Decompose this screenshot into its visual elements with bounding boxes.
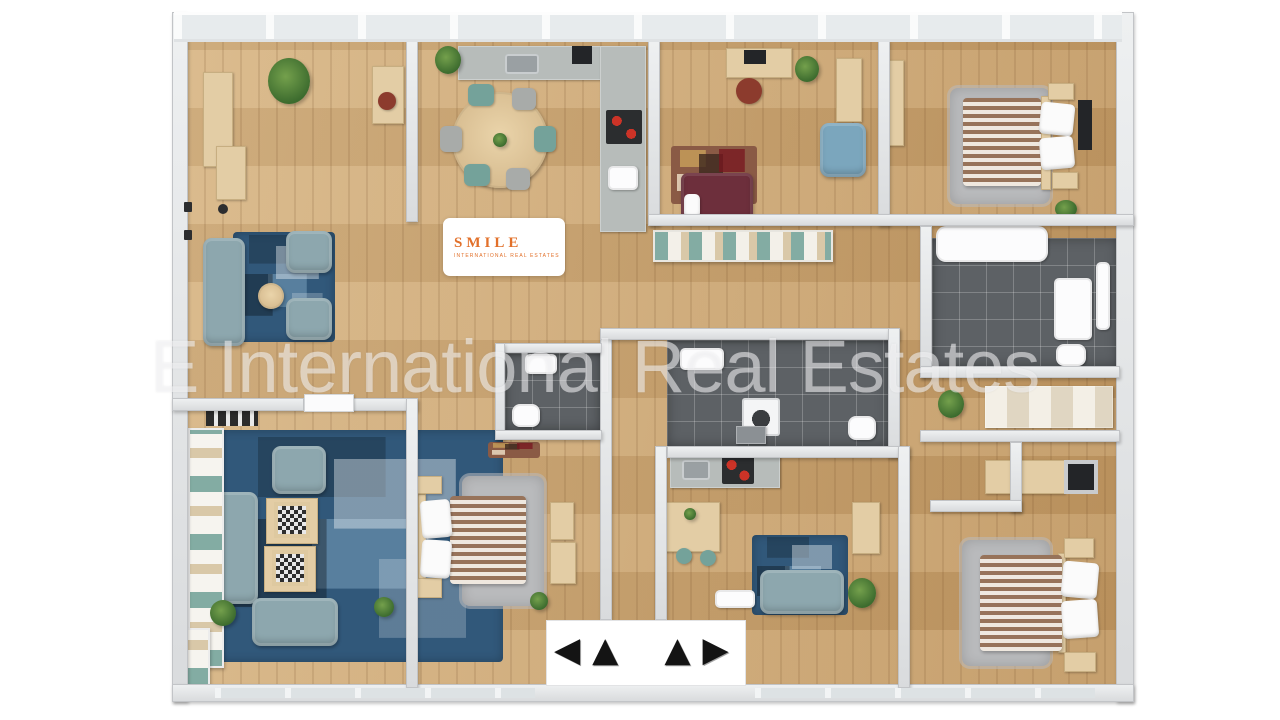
kitchen-sink [505, 54, 539, 74]
pillow [1061, 599, 1100, 639]
dining-chair [512, 88, 536, 110]
nightstand [416, 578, 442, 598]
console-table [216, 146, 246, 200]
wall-art [488, 442, 540, 458]
loveseat [760, 570, 844, 614]
entrance-arrows: ◀ ▲ ▲ ▶ [552, 624, 740, 676]
brand-logo-card: SMILE INTERNATIONAL REAL ESTATES [443, 218, 565, 276]
sideboard [852, 502, 880, 554]
chessboard [278, 506, 306, 534]
cabinet [550, 542, 576, 584]
kitchen-sink-2 [608, 166, 638, 190]
nightstand [1048, 83, 1074, 100]
wall-panel [184, 202, 192, 212]
wall-nook-h [930, 500, 1022, 512]
wall-hall-top [648, 214, 1134, 226]
logo-brand-name: SMILE [454, 236, 560, 251]
chessboard [276, 554, 304, 582]
floor-lamp [218, 204, 228, 214]
nightstand [416, 476, 442, 494]
wall-kitchen2-top [667, 446, 910, 458]
table-plant [684, 508, 696, 520]
armchair [272, 446, 326, 494]
cabinet [715, 590, 755, 608]
wall-study-bedroom [878, 40, 890, 226]
bed-striped-duvet [980, 555, 1062, 651]
nightstand [1052, 172, 1078, 189]
coffee-machine [572, 46, 592, 64]
side-table [258, 283, 284, 309]
kitchen-sink [682, 460, 710, 480]
desk-chair [378, 92, 396, 110]
tall-cabinet [1096, 262, 1110, 330]
bottom-window-right [755, 688, 1095, 698]
cabinet [836, 58, 862, 122]
nightstand [1064, 652, 1096, 672]
wall-kitchen-study [648, 40, 660, 226]
pillow [1060, 560, 1099, 599]
plant [210, 600, 236, 626]
wall-niche [1068, 464, 1094, 490]
stool [676, 548, 692, 564]
wall-bedroom4-top [920, 430, 1120, 442]
stove [722, 456, 754, 484]
pillow [420, 539, 453, 579]
wall-corridor-right [655, 446, 667, 620]
pillow [1038, 101, 1075, 136]
wall-art [1078, 100, 1092, 150]
closet-bench [985, 460, 1065, 494]
watermark-text: E International Real Estates [150, 324, 1280, 409]
floor-plan-render: ◀ ▲ ▲ ▶ E International Real Estates SMI… [0, 0, 1280, 720]
toilet [848, 416, 876, 440]
dresser [550, 502, 574, 540]
arrow-right-icon: ▶ [702, 633, 728, 667]
logo-text-block: SMILE INTERNATIONAL REAL ESTATES [454, 236, 560, 259]
sofa-two-seat [252, 598, 338, 646]
plant [530, 592, 548, 610]
office-chair [736, 78, 762, 104]
plant [848, 578, 876, 608]
plant [795, 56, 819, 82]
stool [700, 550, 716, 566]
plant [268, 58, 310, 104]
hall-shelving [653, 230, 833, 262]
bathtub [936, 226, 1048, 262]
arrow-left-icon: ◀ [554, 633, 580, 667]
pillow [1039, 136, 1076, 171]
dining-chair [440, 126, 462, 152]
top-window-band [174, 12, 1122, 42]
bed-striped-duvet [963, 98, 1041, 186]
dining-chair [468, 84, 494, 106]
wall-kitchen2-right [898, 446, 910, 688]
wall-panel [184, 230, 192, 240]
table-plant [493, 133, 507, 147]
plant [435, 46, 461, 74]
wall-living-dining [406, 40, 418, 222]
range-hood [736, 426, 766, 444]
plant [374, 597, 394, 617]
bottom-window-left [215, 688, 535, 698]
bed-striped-duvet [450, 496, 526, 584]
wall-bedroom2-left [406, 398, 418, 688]
logo-subtitle: INTERNATIONAL REAL ESTATES [454, 254, 560, 259]
wall-wc-bottom [495, 430, 602, 440]
dining-chair [534, 126, 556, 152]
arrow-up-icon: ▲ [664, 633, 690, 667]
stove [606, 110, 642, 144]
nightstand [1064, 538, 1094, 558]
dining-chair [464, 164, 490, 186]
armchair [286, 231, 332, 273]
dining-chair [506, 168, 530, 190]
arrow-up-icon: ▲ [592, 633, 618, 667]
pillow [419, 499, 452, 539]
monitor [744, 50, 766, 64]
blue-armchair [820, 123, 866, 177]
